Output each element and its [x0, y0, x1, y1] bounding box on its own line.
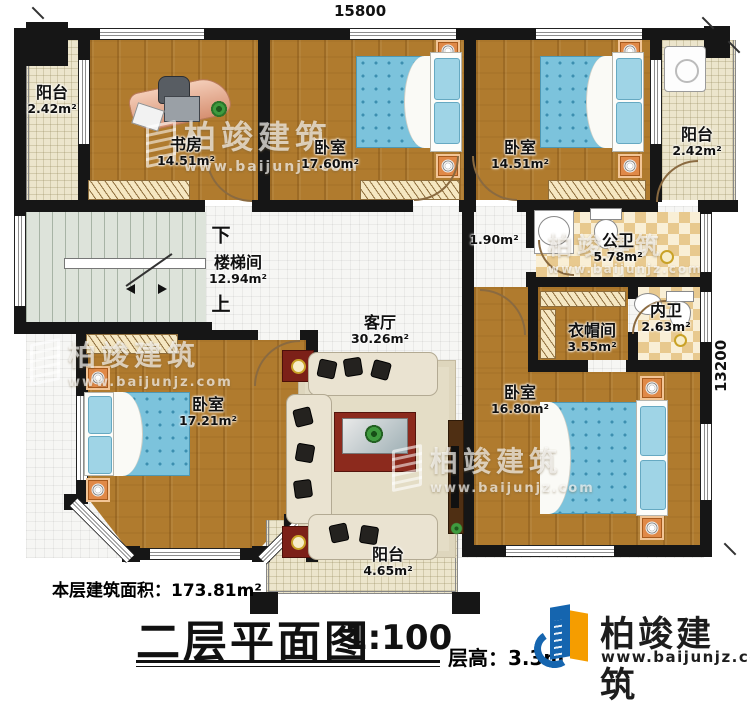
floor-area-text: 本层建筑面积：173.81m²: [52, 576, 262, 601]
room-label-public-bath: 公卫 5.78m²: [593, 232, 642, 264]
pillow: [640, 460, 666, 510]
room-label-study: 书房 14.51m²: [157, 136, 215, 168]
company-website: www.baijunjz.com: [601, 648, 750, 666]
wall: [258, 28, 270, 212]
drawing-scale: 1:100: [344, 618, 452, 658]
room-label-inner-bath: 内卫 2.63m²: [641, 302, 690, 334]
cushion: [295, 443, 316, 464]
window: [14, 216, 26, 306]
stair-up-label: 上: [211, 290, 230, 317]
window: [100, 28, 204, 40]
floor-height-label: 层高：: [448, 646, 508, 670]
room-label-bedroom-a: 卧室 17.60m²: [301, 139, 359, 171]
balcony-door-window: [650, 60, 662, 144]
cushion: [359, 525, 380, 546]
closet-shelves: [540, 291, 626, 307]
window: [700, 424, 712, 500]
wall: [528, 360, 588, 372]
wall: [526, 277, 712, 287]
plant: [210, 100, 228, 118]
stair-handrail: [64, 258, 206, 269]
room-label-bedroom-d: 卧室 16.80m²: [491, 384, 549, 416]
dimension-right: 13200: [712, 340, 730, 392]
company-logo-icon: [534, 604, 596, 672]
cushion: [293, 479, 313, 499]
pillow: [88, 396, 112, 434]
wall: [626, 360, 712, 372]
table-lamp: [291, 535, 306, 550]
pillow: [88, 436, 112, 474]
nightstand: [86, 478, 110, 502]
cushion: [328, 522, 349, 543]
window: [506, 545, 614, 557]
nightstand: [640, 516, 664, 540]
plant: [364, 424, 384, 444]
window: [350, 28, 456, 40]
nightstand: [640, 376, 664, 400]
cushion: [343, 357, 364, 378]
wall: [528, 287, 538, 365]
wall: [464, 28, 476, 212]
pillow: [434, 102, 460, 144]
floor-drain: [660, 250, 674, 264]
balcony-door-window: [78, 60, 90, 144]
room-label-balcony-bottom: 阳台 4.65m²: [363, 546, 412, 578]
stair-down-label: 下: [211, 221, 230, 248]
floor-drain: [674, 334, 687, 347]
cushion: [316, 358, 337, 379]
pillow: [616, 58, 642, 100]
wall: [14, 200, 205, 212]
floor-area-value: 173.81m²: [171, 581, 262, 601]
stair-arrow-icon: [158, 284, 167, 294]
washer-drum: [675, 59, 699, 83]
room-label-stairwell: 楼梯间 12.94m²: [209, 254, 267, 286]
wardrobe: [86, 334, 178, 354]
pillow: [434, 58, 460, 100]
window: [536, 28, 642, 40]
washing-machine: [664, 46, 706, 92]
window: [700, 214, 712, 272]
wall: [300, 330, 318, 340]
wardrobe: [88, 180, 190, 200]
closet-shelves: [540, 309, 556, 359]
plant: [450, 522, 463, 535]
logo-building-blue: [550, 604, 570, 660]
dimension-tick: [724, 543, 737, 556]
pillow: [616, 102, 642, 144]
dimension-tick: [32, 7, 45, 20]
floor-plan: 柏竣建筑 www.baijunjz.com 柏竣建筑 www.baijunjz.…: [0, 0, 750, 682]
room-label-living: 客厅 30.26m²: [351, 314, 409, 346]
nightstand: [618, 154, 642, 178]
stair-arrow-icon: [126, 284, 135, 294]
wardrobe: [548, 180, 646, 200]
wall: [452, 592, 480, 614]
dimension-top: 15800: [334, 2, 386, 20]
room-label-balcony-tr: 阳台 2.42m²: [672, 126, 721, 158]
floor-area-label: 本层建筑面积：: [52, 581, 171, 601]
wall: [252, 200, 413, 212]
title-underline-thin: [136, 666, 440, 667]
room-label-bedroom-c: 卧室 17.21m²: [179, 396, 237, 428]
logo-building-orange: [570, 610, 588, 661]
window: [700, 292, 712, 342]
hall-area-label: 1.90m²: [469, 233, 518, 247]
room-label-bedroom-b: 卧室 14.51m²: [491, 139, 549, 171]
wall: [704, 26, 730, 58]
room-label-balcony-tl: 阳台 2.42m²: [27, 84, 76, 116]
bay-window: [150, 548, 240, 560]
pillow: [640, 406, 666, 456]
nightstand: [86, 366, 110, 390]
title-underline: [136, 660, 440, 663]
tv: [451, 446, 459, 508]
room-label-cloakroom: 衣帽间 3.55m²: [567, 322, 616, 354]
computer-monitor: [164, 96, 200, 122]
